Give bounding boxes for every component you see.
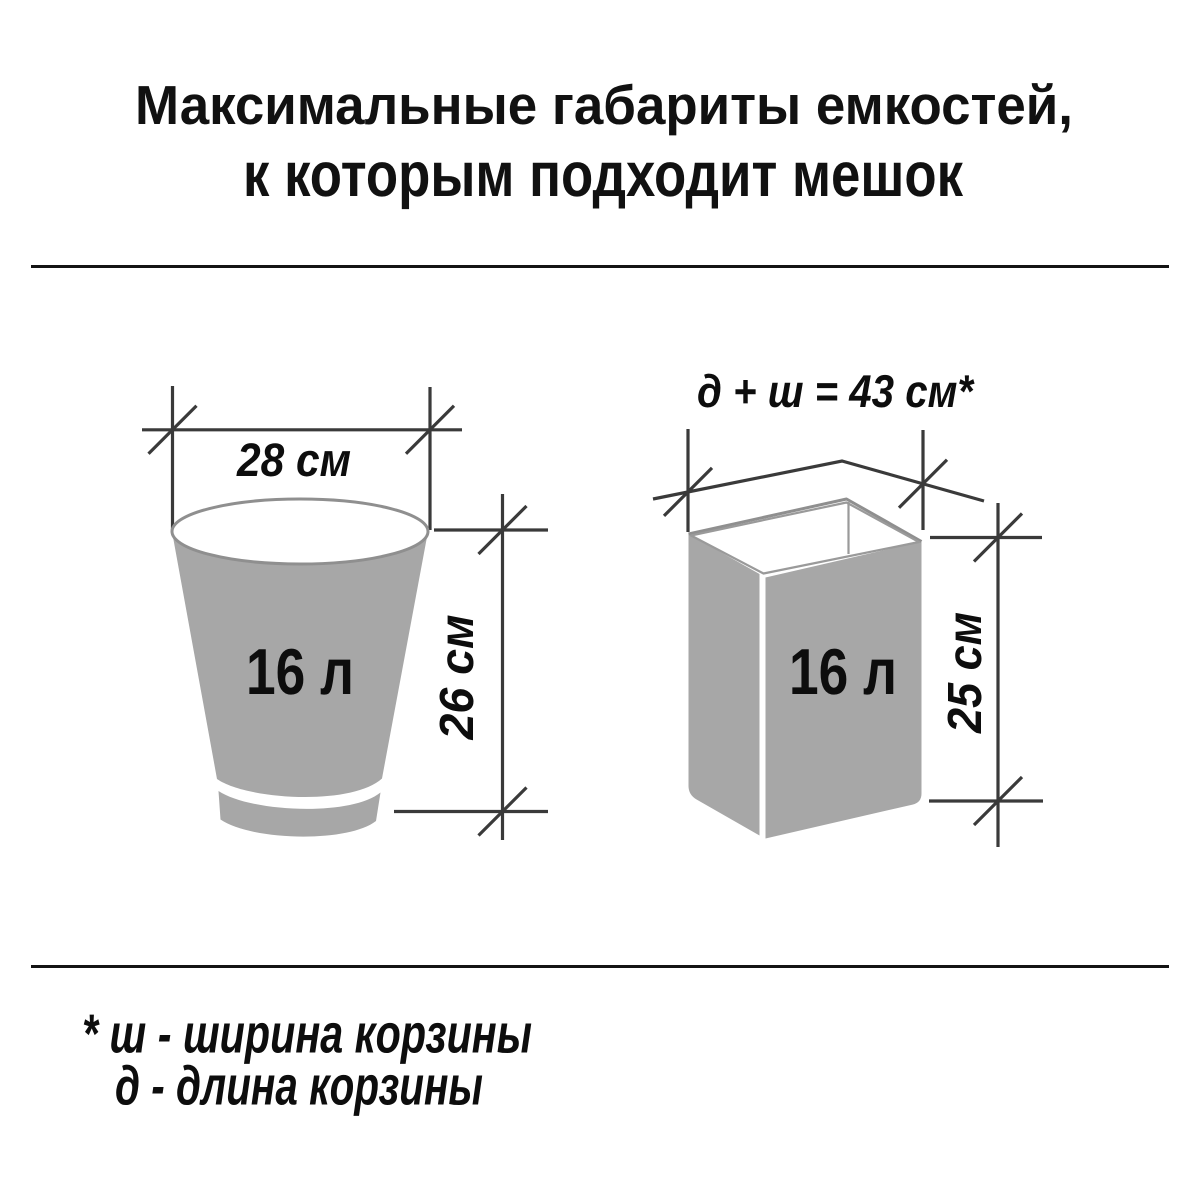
- svg-text:16 л: 16 л: [789, 635, 897, 708]
- svg-text:28 см: 28 см: [236, 433, 351, 486]
- svg-text:Максимальные габариты емкостей: Максимальные габариты емкостей,: [135, 74, 1073, 136]
- svg-text:16 л: 16 л: [246, 635, 354, 708]
- svg-text:к которым подходит мешок: к которым подходит мешок: [243, 140, 963, 210]
- svg-text:д - длина корзины: д - длина корзины: [115, 1055, 483, 1117]
- svg-text:д + ш = 43 см*: д + ш = 43 см*: [697, 365, 975, 417]
